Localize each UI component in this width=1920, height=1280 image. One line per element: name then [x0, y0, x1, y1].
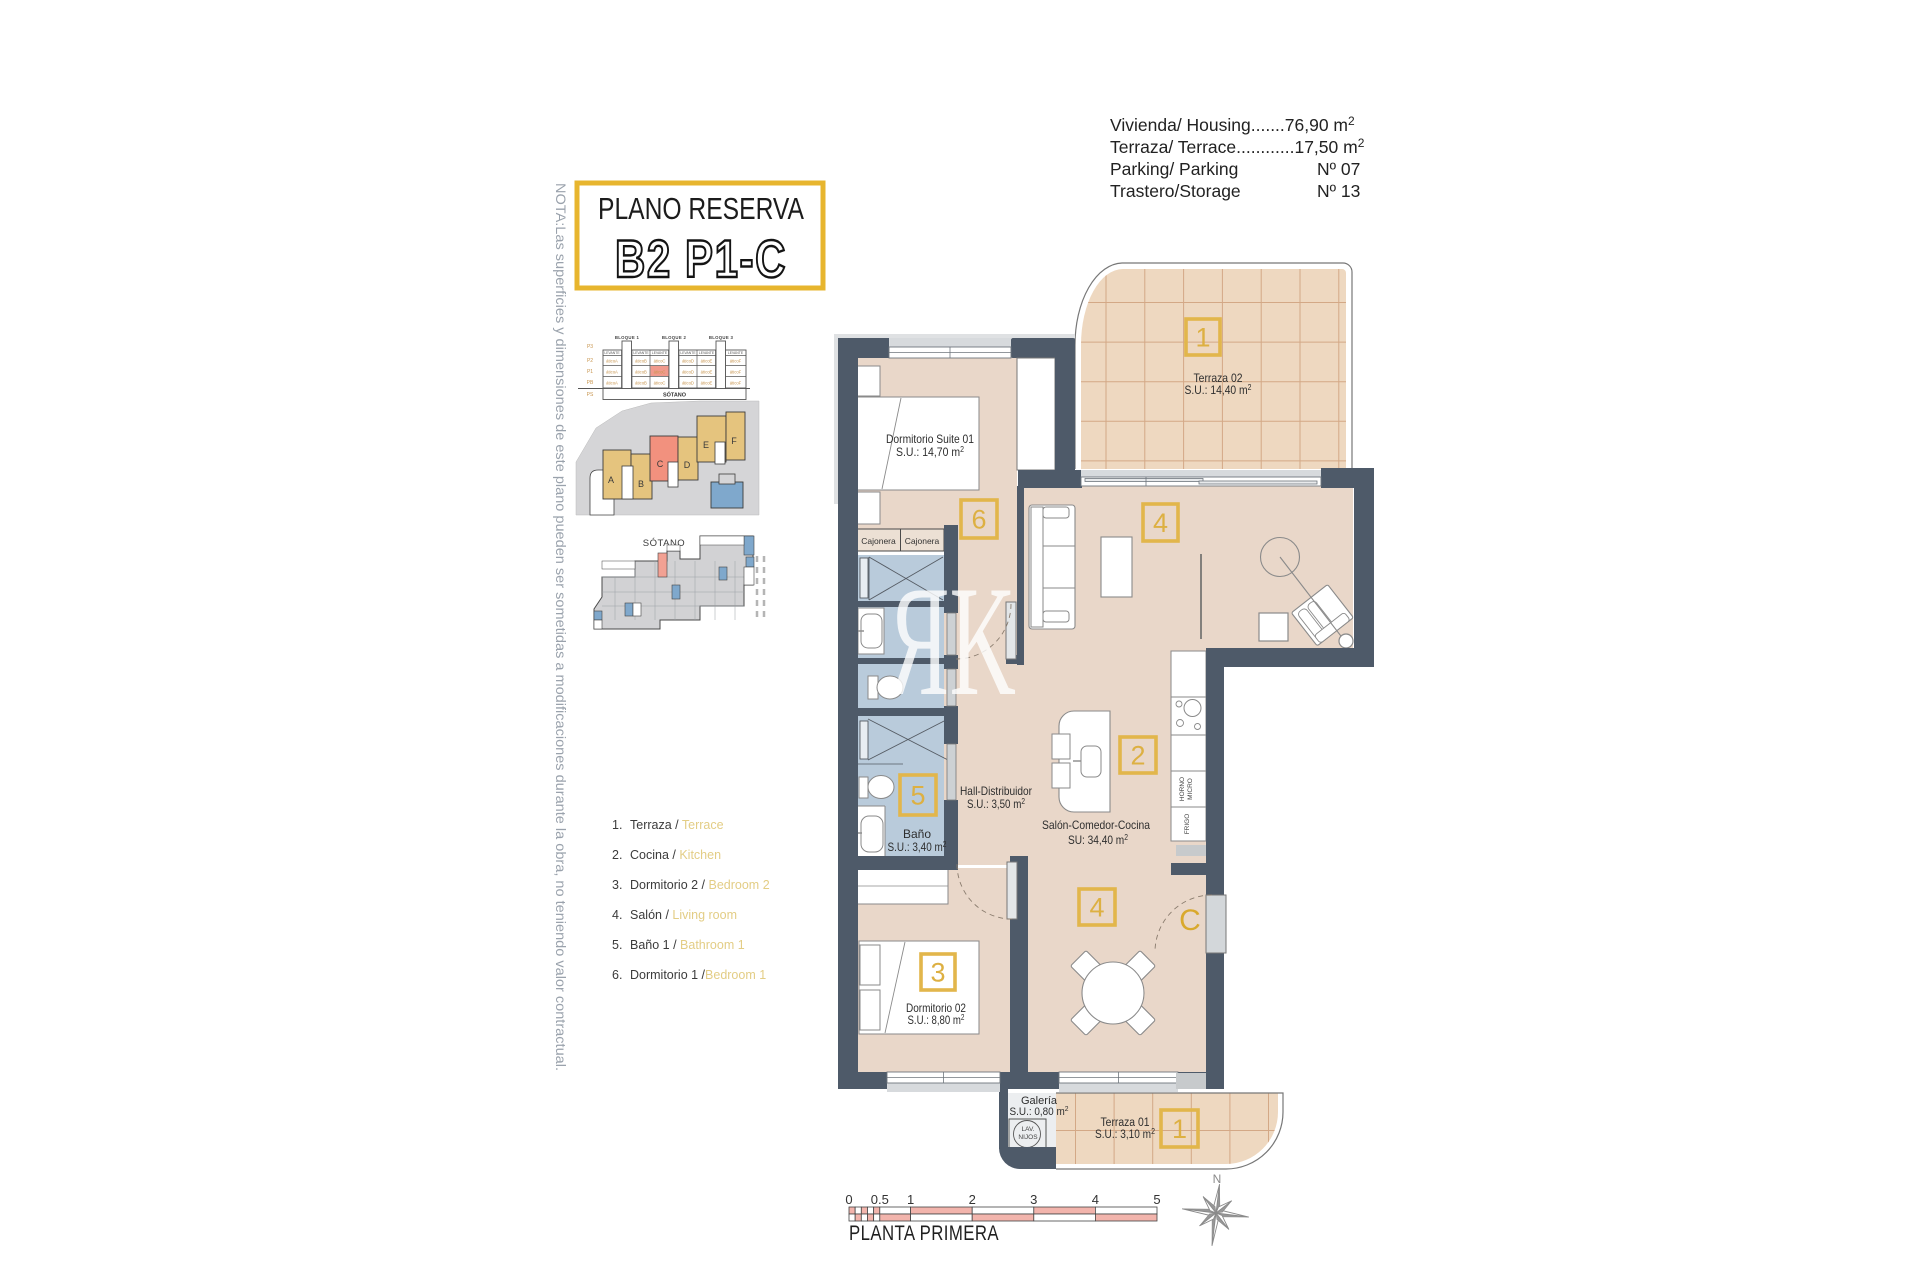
svg-text:3: 3: [930, 958, 945, 988]
svg-text:Cocina / Kitchen: Cocina / Kitchen: [630, 848, 721, 862]
svg-text:áticoA: áticoA: [606, 381, 618, 386]
svg-text:LEVANTE: LEVANTE: [680, 351, 696, 355]
svg-text:áticoF: áticoF: [730, 370, 742, 375]
svg-text:2: 2: [969, 1192, 976, 1207]
svg-text:4: 4: [1089, 893, 1104, 923]
svg-text:LEVANTE: LEVANTE: [728, 351, 744, 355]
svg-text:N: N: [1213, 1172, 1222, 1186]
svg-text:Terraza 01: Terraza 01: [1101, 1117, 1150, 1129]
svg-text:E: E: [703, 440, 709, 450]
svg-text:D: D: [684, 460, 691, 470]
svg-text:6: 6: [971, 505, 986, 535]
svg-text:5: 5: [1153, 1192, 1160, 1207]
svg-text:Trastero/Storage: Trastero/Storage: [1110, 181, 1241, 201]
svg-text:1.: 1.: [612, 818, 622, 832]
svg-text:Vivienda/ Housing.......76,90: Vivienda/ Housing.......76,90 m2: [1110, 114, 1355, 135]
svg-text:Salón / Living room: Salón / Living room: [630, 908, 737, 922]
svg-text:áticoB: áticoB: [635, 359, 647, 364]
svg-text:HORNO: HORNO: [1179, 777, 1186, 801]
svg-text:Cajonera: Cajonera: [861, 536, 896, 546]
svg-text:áticoC: áticoC: [654, 370, 666, 375]
svg-text:Nº 07: Nº 07: [1317, 159, 1360, 179]
svg-text:Dormitorio Suite 01: Dormitorio Suite 01: [886, 432, 974, 446]
svg-text:LEVANTE: LEVANTE: [699, 351, 715, 355]
svg-text:S.U.: 14,70 m2: S.U.: 14,70 m2: [896, 445, 964, 459]
svg-text:SÓTANO: SÓTANO: [663, 391, 687, 399]
svg-text:S.U.: 8,80 m2: S.U.: 8,80 m2: [908, 1013, 965, 1027]
svg-text:Nº 13: Nº 13: [1317, 181, 1360, 201]
svg-text:áticoE: áticoE: [701, 381, 713, 386]
svg-text:áticoF: áticoF: [730, 359, 742, 364]
svg-text:5: 5: [910, 781, 925, 811]
svg-text:PS: PS: [587, 392, 594, 398]
svg-text:BLOQUE 3: BLOQUE 3: [709, 335, 734, 340]
svg-text:SU: 34,40 m2: SU: 34,40 m2: [1068, 833, 1128, 847]
svg-text:P2: P2: [587, 358, 593, 364]
svg-text:5.: 5.: [612, 938, 622, 952]
svg-text:áticoB: áticoB: [635, 370, 647, 375]
svg-text:0: 0: [845, 1192, 852, 1207]
svg-text:Dormitorio 1 /Bedroom 1: Dormitorio 1 /Bedroom 1: [630, 968, 766, 982]
svg-text:áticoF: áticoF: [730, 381, 742, 386]
svg-text:BLOQUE 2: BLOQUE 2: [662, 335, 687, 340]
svg-text:FRIGO: FRIGO: [1184, 814, 1191, 835]
svg-text:S.U.: 0,80 m2: S.U.: 0,80 m2: [1010, 1104, 1069, 1118]
svg-text:áticoB: áticoB: [635, 381, 647, 386]
svg-text:S.U.: 3,40 m2: S.U.: 3,40 m2: [888, 840, 947, 854]
svg-text:PB: PB: [587, 380, 594, 386]
svg-text:F: F: [731, 436, 737, 446]
svg-text:Hall-Distribuidor: Hall-Distribuidor: [960, 784, 1032, 798]
svg-text:A: A: [608, 475, 614, 485]
svg-text:1: 1: [1172, 1114, 1187, 1144]
svg-text:LEVANTE: LEVANTE: [652, 351, 668, 355]
svg-text:Salón-Comedor-Cocina: Salón-Comedor-Cocina: [1042, 818, 1150, 832]
svg-text:áticoE: áticoE: [701, 359, 713, 364]
svg-text:áticoD: áticoD: [682, 370, 694, 375]
svg-text:Dormitorio 2 / Bedroom 2: Dormitorio 2 / Bedroom 2: [630, 878, 770, 892]
svg-text:áticoD: áticoD: [682, 381, 694, 386]
svg-text:Terraza / Terrace: Terraza / Terrace: [630, 818, 724, 832]
svg-text:LEVANTE: LEVANTE: [604, 351, 620, 355]
svg-text:BLOQUE 1: BLOQUE 1: [615, 335, 640, 340]
svg-text:1: 1: [907, 1192, 914, 1207]
svg-text:P3: P3: [587, 344, 593, 350]
svg-text:áticoC: áticoC: [654, 359, 666, 364]
svg-text:2.: 2.: [612, 848, 622, 862]
svg-text:áticoA: áticoA: [606, 359, 618, 364]
svg-text:S.U.: 14,40 m2: S.U.: 14,40 m2: [1185, 383, 1252, 397]
svg-text:C: C: [1179, 904, 1201, 937]
svg-text:NOTA:Las superficies y dimensi: NOTA:Las superficies y dimensiones de es…: [553, 183, 568, 1071]
svg-text:B: B: [638, 479, 644, 489]
svg-text:ЯK: ЯK: [888, 554, 1016, 729]
svg-text:NIJOS: NIJOS: [1018, 1134, 1038, 1141]
svg-text:PLANO RESERVA: PLANO RESERVA: [598, 191, 804, 226]
svg-text:áticoC: áticoC: [654, 381, 666, 386]
svg-text:S.U.: 3,10 m2: S.U.: 3,10 m2: [1095, 1127, 1155, 1141]
svg-text:4: 4: [1153, 508, 1168, 538]
svg-text:3.: 3.: [612, 878, 622, 892]
svg-text:C: C: [657, 459, 664, 469]
svg-text:áticoA: áticoA: [606, 370, 618, 375]
svg-text:Cajonera: Cajonera: [905, 536, 940, 546]
svg-text:LAV.: LAV.: [1021, 1126, 1034, 1133]
svg-text:4: 4: [1092, 1192, 1099, 1207]
svg-text:B2 P1-C: B2 P1-C: [615, 230, 787, 289]
svg-text:0.5: 0.5: [871, 1192, 889, 1207]
svg-text:Baño 1 / Bathroom 1: Baño 1 / Bathroom 1: [630, 938, 745, 952]
svg-text:LEVANTE: LEVANTE: [633, 351, 649, 355]
svg-text:Parking/ Parking: Parking/ Parking: [1110, 159, 1238, 179]
svg-text:Baño: Baño: [903, 827, 931, 841]
svg-text:MICRO: MICRO: [1187, 778, 1194, 800]
svg-text:S.U.: 3,50 m2: S.U.: 3,50 m2: [967, 797, 1025, 811]
svg-text:áticoE: áticoE: [701, 370, 713, 375]
svg-text:6.: 6.: [612, 968, 622, 982]
svg-text:3: 3: [1030, 1192, 1037, 1207]
svg-text:4.: 4.: [612, 908, 622, 922]
svg-text:1: 1: [1195, 323, 1210, 353]
svg-text:2: 2: [1130, 741, 1145, 771]
svg-text:Terraza/ Terrace............17: Terraza/ Terrace............17,50 m2: [1110, 136, 1365, 157]
svg-text:P1: P1: [587, 369, 593, 375]
svg-text:áticoD: áticoD: [682, 359, 694, 364]
svg-text:PLANTA PRIMERA: PLANTA PRIMERA: [849, 1222, 999, 1245]
